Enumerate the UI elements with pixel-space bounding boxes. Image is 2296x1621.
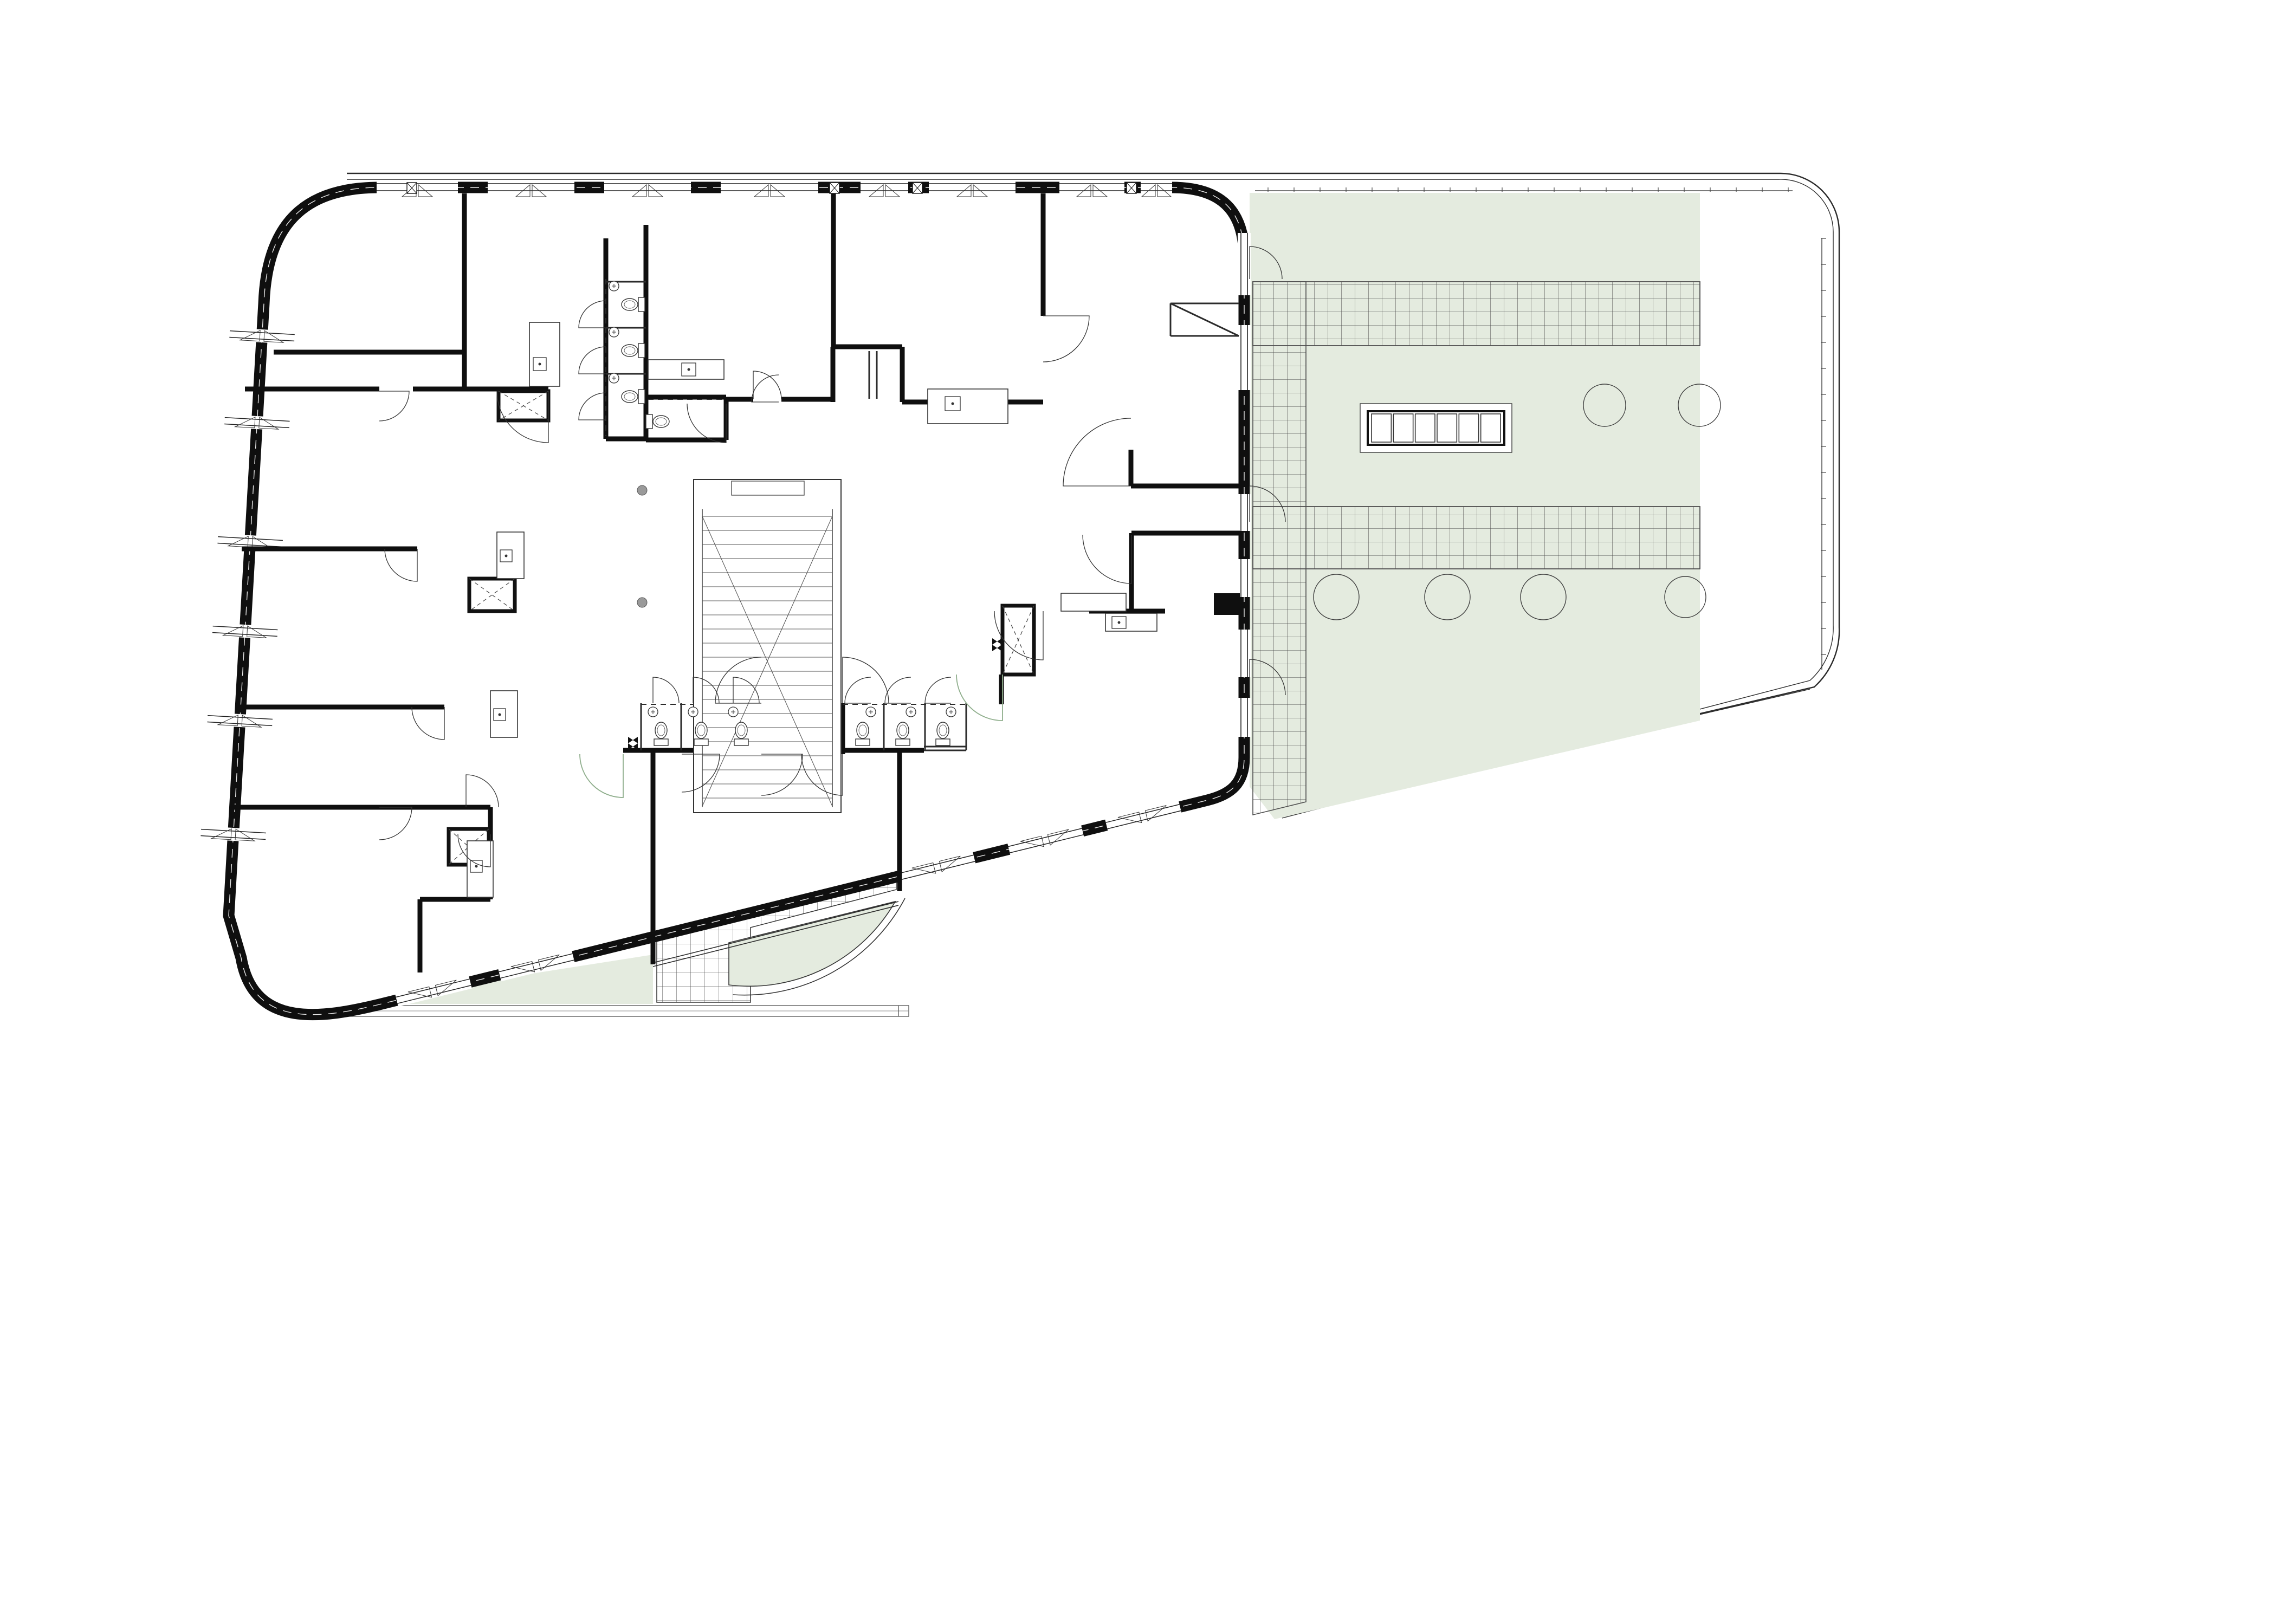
kitchen-counter [490, 691, 518, 737]
hand-basin [648, 707, 658, 717]
toilet-bowl [735, 722, 747, 738]
kitchen-counter [648, 360, 724, 379]
toilet-bowl [695, 722, 707, 738]
toilet [734, 722, 748, 745]
window-gap [929, 181, 1016, 194]
window-gap [1059, 181, 1124, 194]
toilet [896, 722, 910, 745]
toilet-tank [896, 739, 910, 745]
window [1238, 630, 1251, 677]
window-gap [1238, 325, 1251, 390]
toilet-bowl [622, 299, 638, 310]
toilet [856, 722, 870, 745]
counter [1061, 593, 1126, 611]
toilet-tank [654, 739, 668, 745]
kitchen-counter [467, 841, 493, 897]
skylight-pane [1459, 414, 1478, 442]
kitchen-counter [497, 532, 524, 579]
toilet-bowl [937, 722, 949, 738]
wall-pier [1214, 593, 1240, 615]
kitchen-counter [529, 322, 560, 386]
garden-paving-band [1253, 507, 1700, 569]
sink-drain [1118, 621, 1121, 624]
sink-drain [688, 368, 690, 371]
sink-drain [952, 403, 954, 405]
floor-plan-drawing [0, 0, 2296, 1621]
window-gap [1238, 233, 1251, 295]
window-gap [721, 181, 818, 194]
kitchen-counter [1105, 613, 1157, 631]
skylight-pane [1393, 414, 1413, 442]
skylight-pane [1372, 414, 1391, 442]
elevator-shaft [499, 391, 548, 420]
toilet [936, 722, 950, 745]
window-gap [1238, 494, 1251, 531]
hand-basin [609, 327, 619, 337]
floor-plan-sheet [0, 0, 2296, 1621]
toilet-bowl [897, 722, 909, 738]
window [1238, 233, 1251, 295]
elevator-shaft [1003, 606, 1034, 675]
wall-post-marker [913, 183, 922, 193]
hand-basin [609, 281, 619, 291]
toilet [622, 390, 645, 404]
toilet-bowl [857, 722, 869, 738]
wall-post-marker [407, 183, 417, 193]
hand-basin [688, 707, 698, 717]
hand-basin [728, 707, 738, 717]
stair-landing [732, 481, 804, 495]
courtyard-skylight [1360, 404, 1512, 452]
stair-core [694, 479, 841, 813]
toilet-tank [638, 343, 645, 358]
hand-basin [946, 707, 956, 717]
hand-basin [609, 373, 619, 383]
window [1238, 698, 1251, 737]
window [1238, 559, 1251, 597]
hand-basin [866, 707, 876, 717]
window-gap [488, 181, 574, 194]
window-gap [1141, 181, 1172, 194]
stair-outline [694, 479, 841, 813]
sink-drain [539, 363, 541, 366]
column-dot [637, 598, 647, 607]
toilet-bowl [622, 345, 638, 356]
skylight-pane [1437, 414, 1457, 442]
wall-post-marker [830, 183, 839, 193]
toilet-tank [734, 739, 748, 745]
toilet-tank [856, 739, 870, 745]
skylight-pane [1415, 414, 1435, 442]
column-dot [637, 485, 647, 495]
sink-drain [499, 714, 501, 716]
sink-drain [505, 555, 508, 557]
toilet-tank [694, 739, 708, 745]
toilet [622, 343, 645, 358]
window [1238, 494, 1251, 531]
toilet [654, 722, 668, 745]
toilet-bowl [622, 391, 638, 403]
garden-paving-strip [1253, 282, 1306, 815]
kitchen-counter [928, 389, 1008, 424]
toilet-bowl [653, 416, 669, 427]
window-gap [1238, 698, 1251, 737]
window-gap [1238, 630, 1251, 677]
toilet-tank [646, 414, 652, 429]
toilet [694, 722, 708, 745]
counter [529, 322, 560, 386]
window-gap [377, 181, 458, 194]
window-gap [604, 181, 691, 194]
toilet [622, 297, 645, 312]
window-gap [861, 181, 908, 194]
hand-basin [906, 707, 916, 717]
toilet-tank [638, 390, 645, 404]
skylight-pane [1481, 414, 1501, 442]
sink-drain [475, 865, 478, 868]
toilet [646, 414, 669, 429]
window [1238, 325, 1251, 390]
kitchen-counter [1061, 593, 1126, 611]
toilet-bowl [655, 722, 667, 738]
garden-paving-band [1253, 282, 1700, 346]
counter [928, 389, 1008, 424]
elevator-shaft [469, 579, 515, 611]
toilet-tank [638, 297, 645, 312]
toilet-tank [936, 739, 950, 745]
wall-post-marker [1127, 183, 1136, 193]
window-gap [1238, 559, 1251, 597]
